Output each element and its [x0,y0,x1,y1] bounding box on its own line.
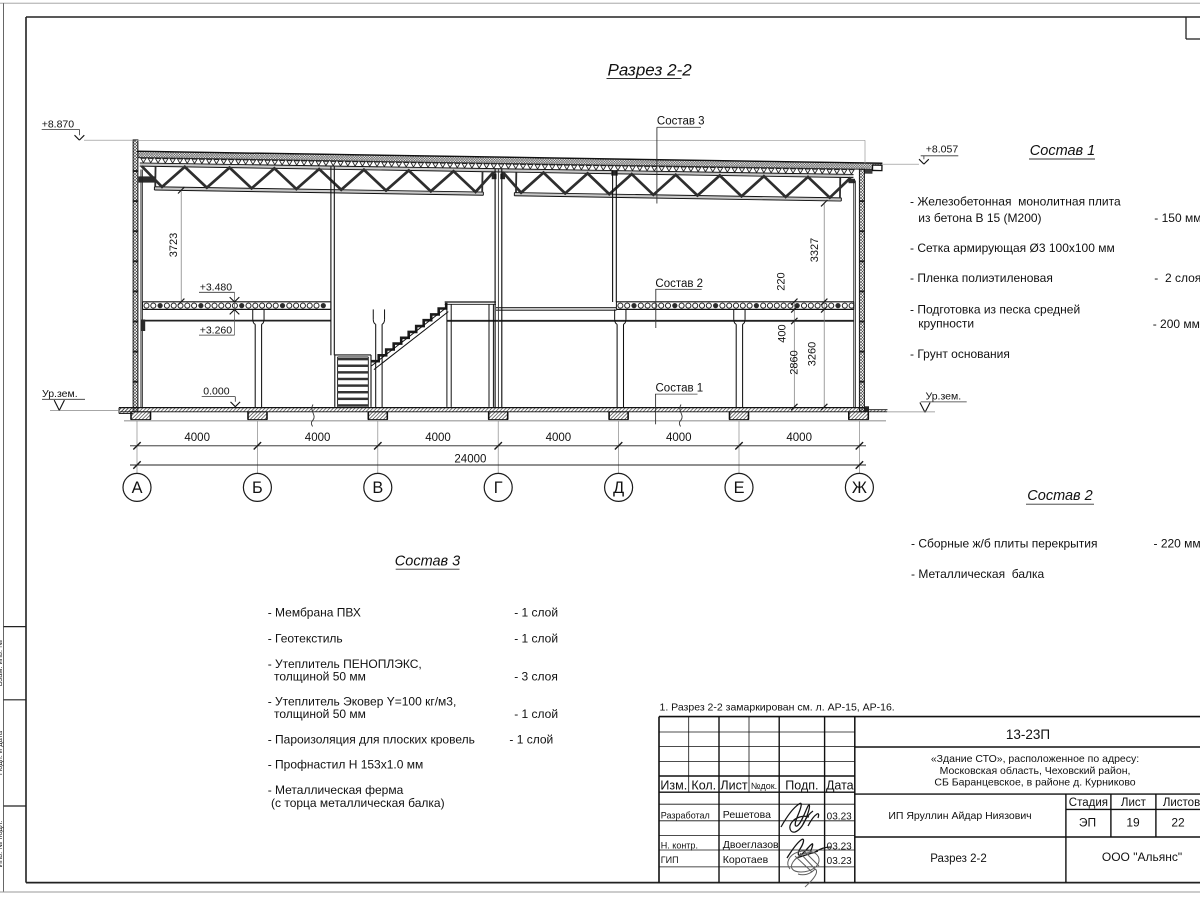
svg-text:Разрез 2-2: Разрез 2-2 [608,61,693,80]
svg-text:Состав 1: Состав 1 [656,382,704,394]
svg-text:ООО "Альянс": ООО "Альянс" [1102,850,1182,864]
svg-text:ИП Яруллин Айдар Ниязович: ИП Яруллин Айдар Ниязович [888,810,1031,822]
svg-text:Состав 3: Состав 3 [395,553,460,569]
svg-text:+8.057: +8.057 [926,144,959,156]
svg-text:«Здание СТО», расположенное по: «Здание СТО», расположенное по адресу: [931,753,1139,765]
svg-text:- 150 мм: - 150 мм [1154,211,1200,225]
svg-text:19: 19 [1126,816,1140,830]
svg-text:24000: 24000 [454,453,486,465]
svg-text:2860: 2860 [789,350,801,374]
svg-text:толщиной 50 мм: толщиной 50 мм [274,707,366,721]
svg-text:Двоеглазов: Двоеглазов [723,839,779,851]
svg-text:22: 22 [1171,816,1185,830]
svg-text:- Мембрана ПВХ: - Мембрана ПВХ [268,606,361,620]
svg-text:3723: 3723 [168,233,180,257]
svg-text:- 1 слой: - 1 слой [509,733,553,747]
svg-text:Н. контр.: Н. контр. [661,840,698,850]
svg-text:13-23П: 13-23П [1006,727,1050,742]
svg-text:Разрез 2-2: Разрез 2-2 [930,853,986,865]
svg-text:- Пленка полиэтиленовая: - Пленка полиэтиленовая [910,271,1053,285]
svg-text:Д: Д [613,479,624,497]
svg-text:- 200 мм: - 200 мм [1153,317,1200,331]
svg-text:Московская область, Чеховский: Московская область, Чеховский район, [940,765,1131,777]
svg-text:+8.870: +8.870 [42,118,75,130]
svg-text:Ж: Ж [852,479,867,497]
svg-text:Ур.зем.: Ур.зем. [42,388,78,400]
svg-text:+3.480: +3.480 [200,281,233,293]
svg-text:1. Разрез 2-2 замаркирован см.: 1. Разрез 2-2 замаркирован см. л. АР-15,… [660,702,895,714]
svg-text:Е: Е [734,479,745,497]
svg-text:СБ Баранцевское, в районе д. К: СБ Баранцевское, в районе д. Курниково [934,777,1135,789]
svg-text:Подп.: Подп. [785,778,818,792]
svg-text:4000: 4000 [425,432,451,444]
svg-text:Изм.: Изм. [660,778,687,792]
svg-text:- 2 слоя: - 2 слоя [1154,271,1200,285]
svg-text:3327: 3327 [809,238,821,262]
svg-text:Лист: Лист [720,778,747,792]
svg-text:- 3 слоя: - 3 слоя [514,670,558,684]
svg-text:Дата: Дата [826,778,854,792]
svg-text:Инв. № подл.: Инв. № подл. [0,821,4,868]
svg-text:Состав 3: Состав 3 [657,115,705,127]
svg-text:400: 400 [777,324,789,342]
svg-text:Лист: Лист [1121,797,1147,809]
svg-text:Коротаев: Коротаев [723,854,769,866]
svg-text:3260: 3260 [807,342,819,366]
svg-text:- Грунт основания: - Грунт основания [910,347,1010,361]
svg-text:0.000: 0.000 [203,386,229,398]
svg-text:толщиной 50 мм: толщиной 50 мм [274,670,366,684]
svg-text:Состав 2: Состав 2 [1027,488,1092,504]
svg-text:(с торца металлическая балка): (с торца металлическая балка) [271,796,445,810]
svg-text:Кол.: Кол. [691,778,716,792]
svg-text:А: А [132,479,143,497]
svg-text:Состав 2: Состав 2 [655,278,703,290]
svg-text:- Подготовка из песка средней: - Подготовка из песка средней [910,303,1080,317]
svg-text:Г: Г [494,479,503,497]
svg-text:4000: 4000 [305,432,331,444]
svg-text:ЭП: ЭП [1079,816,1096,830]
svg-text:- 1 слой: - 1 слой [514,631,558,645]
svg-text:4000: 4000 [184,432,210,444]
svg-text:- 1 слой: - 1 слой [514,707,558,721]
svg-text:- Геотекстиль: - Геотекстиль [268,631,343,645]
svg-text:Решетова: Решетова [723,809,771,821]
svg-text:Б: Б [252,479,263,497]
svg-text:- Сборные ж/б плиты перекрытия: - Сборные ж/б плиты перекрытия [911,537,1097,551]
svg-text:крупности: крупности [918,317,974,331]
svg-text:4000: 4000 [666,432,692,444]
svg-text:- Профнастил Н 153х1.0 мм: - Профнастил Н 153х1.0 мм [268,757,424,771]
svg-text:+3.260: +3.260 [200,324,233,336]
svg-text:- Пароизоляция для плоских кро: - Пароизоляция для плоских кровель [268,733,475,747]
svg-text:Стадия: Стадия [1069,797,1108,809]
svg-text:Листов: Листов [1163,797,1200,809]
svg-text:4000: 4000 [546,432,572,444]
svg-text:- Железобетонная монолитная п: - Железобетонная монолитная плита [910,195,1121,209]
svg-text:Состав 1: Состав 1 [1030,143,1095,159]
svg-text:220: 220 [776,272,788,290]
svg-text:Разработал: Разработал [661,810,710,820]
svg-text:03.23: 03.23 [827,856,852,867]
svg-text:- 1 слой: - 1 слой [514,606,558,620]
svg-text:В: В [372,479,383,497]
svg-text:из бетона В 15 (М200): из бетона В 15 (М200) [918,211,1041,225]
svg-text:- Сетка армирующая Ø3 100х100: - Сетка армирующая Ø3 100х100 мм [910,241,1115,255]
svg-text:Ур.зем.: Ур.зем. [926,390,962,402]
svg-text:4000: 4000 [786,432,812,444]
svg-text:03.23: 03.23 [827,811,852,822]
svg-text:- 220 мм: - 220 мм [1154,537,1200,551]
svg-text:ГИП: ГИП [661,855,679,865]
svg-text:Взам. инв. №: Взам. инв. № [0,640,4,686]
svg-text:Подп. и дата: Подп. и дата [0,730,4,775]
svg-text:№док.: №док. [751,781,777,791]
svg-text:- Металлическая балка: - Металлическая балка [911,567,1045,581]
